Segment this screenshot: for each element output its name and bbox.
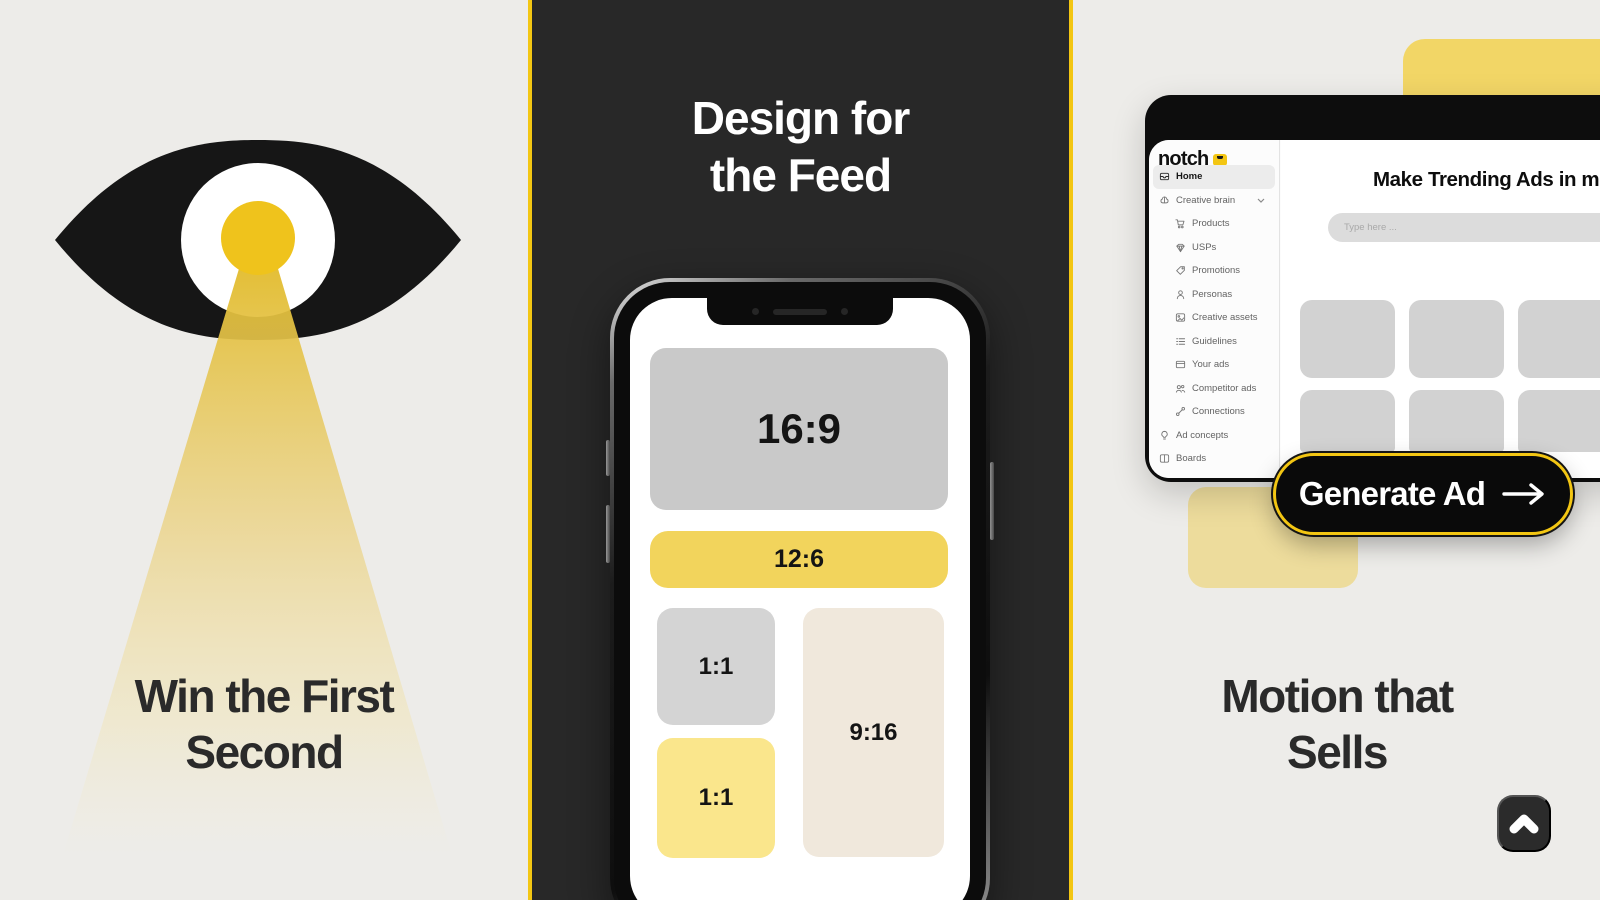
sidebar-item-personas[interactable]: Personas — [1149, 283, 1279, 307]
sidebar-item-creative-brain[interactable]: Creative brain — [1149, 189, 1279, 213]
image-icon — [1175, 312, 1186, 323]
aspect-tile-16-9: 16:9 — [650, 348, 948, 510]
panel-win-first-second: Win the First Second — [0, 0, 528, 900]
aspect-label: 1:1 — [699, 653, 734, 681]
lightbulb-icon — [1159, 430, 1170, 441]
sidebar-item-label: Creative brain — [1176, 195, 1235, 206]
sidebar-item-label: Guidelines — [1192, 336, 1237, 347]
sidebar-item-ad-concepts[interactable]: Ad concepts — [1149, 424, 1279, 448]
ad-placeholder-tile — [1518, 390, 1600, 452]
right-headline-line1: Motion that — [1221, 670, 1452, 722]
home-icon — [1159, 171, 1170, 182]
chevron-up-icon — [1509, 813, 1539, 835]
phone-notch — [707, 298, 893, 325]
ad-placeholder-tile — [1409, 390, 1504, 452]
aspect-tile-12-6: 12:6 — [650, 531, 948, 588]
sidebar-item-boards[interactable]: Boards — [1149, 447, 1279, 471]
aspect-label: 16:9 — [757, 405, 841, 453]
speaker-slot-icon — [773, 309, 827, 315]
ad-creative-collage: Win the First Second Design for the Feed… — [0, 0, 1600, 900]
sidebar-item-connections[interactable]: Connections — [1149, 400, 1279, 424]
sidebar-item-label: Promotions — [1192, 265, 1240, 276]
aspect-tile-1-1-yellow: 1:1 — [657, 738, 775, 858]
left-headline: Win the First Second — [0, 668, 528, 780]
sidebar-item-competitor-ads[interactable]: Competitor ads — [1149, 377, 1279, 401]
sidebar-item-label: USPs — [1192, 242, 1216, 253]
sidebar-nav: Home Creative brain — [1149, 165, 1279, 471]
aspect-label: 12:6 — [774, 545, 824, 574]
aspect-tile-9-16: 9:16 — [803, 608, 944, 857]
ad-placeholder-row — [1300, 300, 1600, 378]
scroll-top-button[interactable] — [1497, 795, 1551, 852]
phone-power-button — [990, 462, 994, 540]
ad-placeholder-tile — [1518, 300, 1600, 378]
tag-icon — [1175, 265, 1186, 276]
sidebar-item-products[interactable]: Products — [1149, 212, 1279, 236]
sidebar-item-label: Boards — [1176, 453, 1206, 464]
app-sidebar: notch Home — [1149, 140, 1280, 478]
camera-dot-icon — [752, 308, 759, 315]
sidebar-item-label: Home — [1176, 171, 1202, 182]
brain-icon — [1159, 195, 1170, 206]
sidebar-item-label: Connections — [1192, 406, 1245, 417]
gem-icon — [1175, 242, 1186, 253]
arrow-right-icon — [1501, 481, 1547, 507]
browser-icon — [1175, 359, 1186, 370]
prompt-input[interactable] — [1328, 213, 1600, 242]
sidebar-item-label: Ad concepts — [1176, 430, 1228, 441]
checklist-icon — [1175, 336, 1186, 347]
sidebar-item-home[interactable]: Home — [1153, 165, 1275, 189]
notch-app-window: notch Home — [1145, 95, 1600, 482]
cart-icon — [1175, 218, 1186, 229]
panel-motion-that-sells: notch Home — [1073, 0, 1600, 900]
left-headline-line1: Win the First — [135, 670, 394, 722]
link-icon — [1175, 406, 1186, 417]
panel-design-for-feed: Design for the Feed 16:9 12:6 1:1 — [528, 0, 1073, 900]
eye-pupil — [221, 201, 295, 275]
sidebar-item-usps[interactable]: USPs — [1149, 236, 1279, 260]
app-window-content: notch Home — [1149, 140, 1600, 478]
phone-bezel: 16:9 12:6 1:1 1:1 9:16 — [614, 282, 986, 900]
persona-icon — [1175, 289, 1186, 300]
main-heading: Make Trending Ads in minutes — [1373, 168, 1600, 192]
sidebar-item-promotions[interactable]: Promotions — [1149, 259, 1279, 283]
sidebar-item-label: Competitor ads — [1192, 383, 1256, 394]
ad-placeholder-row — [1300, 390, 1600, 452]
board-icon — [1159, 453, 1170, 464]
middle-headline-line2: the Feed — [710, 149, 891, 201]
sidebar-item-creative-assets[interactable]: Creative assets — [1149, 306, 1279, 330]
ad-placeholder-tile — [1300, 300, 1395, 378]
middle-headline-line1: Design for — [692, 92, 909, 144]
sidebar-item-label: Your ads — [1192, 359, 1229, 370]
chevron-down-icon[interactable] — [1257, 198, 1265, 203]
generate-ad-button[interactable]: Generate Ad — [1273, 453, 1573, 535]
phone-screen: 16:9 12:6 1:1 1:1 9:16 — [630, 298, 970, 900]
sidebar-item-guidelines[interactable]: Guidelines — [1149, 330, 1279, 354]
notch-logo-badge-icon — [1213, 154, 1227, 166]
generate-ad-label: Generate Ad — [1299, 475, 1485, 513]
camera-dot-icon — [841, 308, 848, 315]
middle-headline: Design for the Feed — [532, 90, 1069, 204]
right-headline: Motion that Sells — [1077, 668, 1597, 780]
ad-placeholder-tile — [1409, 300, 1504, 378]
aspect-label: 1:1 — [699, 784, 734, 812]
users-icon — [1175, 383, 1186, 394]
right-headline-line2: Sells — [1287, 726, 1387, 778]
left-headline-line2: Second — [185, 726, 342, 778]
app-main-area: Make Trending Ads in minutes — [1281, 140, 1600, 478]
sidebar-item-your-ads[interactable]: Your ads — [1149, 353, 1279, 377]
sidebar-item-label: Creative assets — [1192, 312, 1257, 323]
sidebar-item-label: Personas — [1192, 289, 1232, 300]
aspect-label: 9:16 — [849, 719, 897, 747]
aspect-tile-1-1-gray: 1:1 — [657, 608, 775, 725]
sidebar-item-label: Products — [1192, 218, 1230, 229]
phone-mockup: 16:9 12:6 1:1 1:1 9:16 — [610, 278, 990, 900]
ad-placeholder-tile — [1300, 390, 1395, 452]
